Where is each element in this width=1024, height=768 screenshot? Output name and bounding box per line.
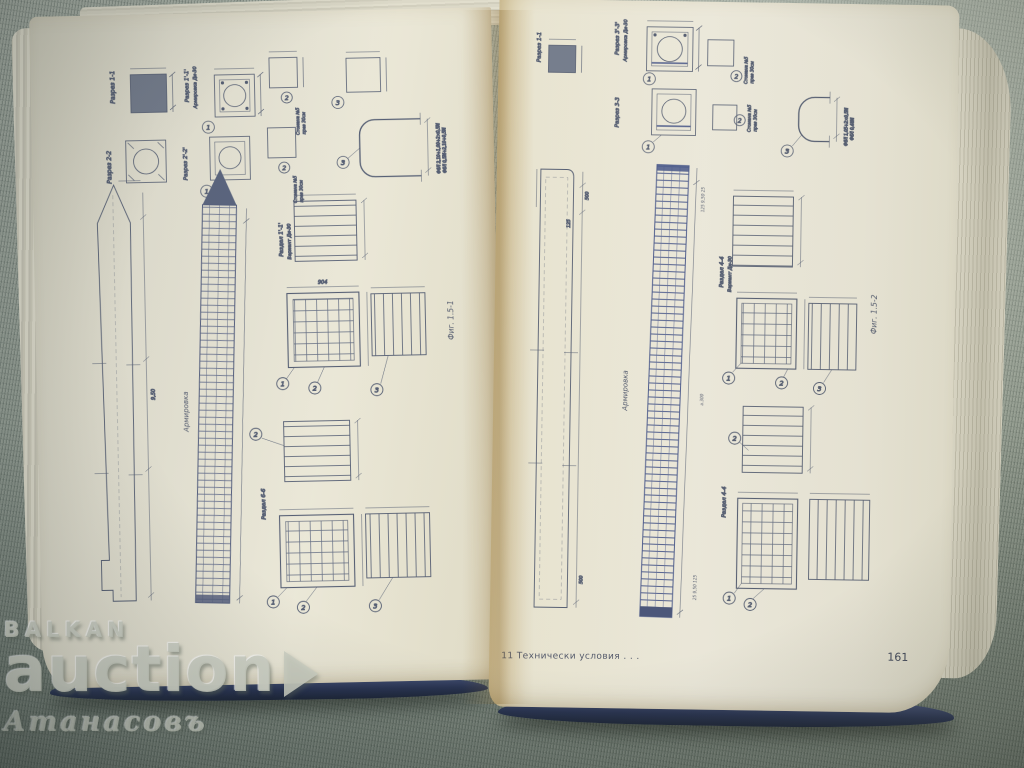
section-label: Армировка Ди-30 <box>623 19 630 62</box>
callout-1: 1 <box>643 73 655 85</box>
steel-note: през 30см <box>753 109 758 131</box>
svg-text:1: 1 <box>727 375 731 383</box>
detail-variant: Вариант Ди-30 <box>286 223 293 259</box>
figure-label: Фиг. 1.5-2 <box>869 294 879 334</box>
page-number: 161 <box>887 651 908 664</box>
callout-1: 1 <box>276 367 294 389</box>
svg-text:3: 3 <box>375 386 379 394</box>
dim-spacing: а.300 <box>699 393 704 405</box>
svg-text:3: 3 <box>817 385 821 393</box>
section-label: Разрез 2'-2' <box>183 147 190 180</box>
callout-3: 3 <box>370 355 389 395</box>
steel-note: Стомана №5 <box>292 175 298 203</box>
ubar-note: Ф6Л 0,48М <box>849 117 854 140</box>
svg-text:1: 1 <box>727 595 731 603</box>
callout-1: 1 <box>642 135 661 153</box>
steel-note: Стомана №5 <box>743 56 748 84</box>
dim-sequence-top: 125 9,50 25 <box>700 187 705 213</box>
left-figure-drawing: Разрез 1-1 Разрез 2-2 Разрез 1'-1' Армир… <box>86 38 479 650</box>
svg-text:1: 1 <box>281 380 285 388</box>
right-cross-sections: Разрез 1-1 Разрез 3'-3' Армировка Ди-30 … <box>535 18 759 155</box>
steel-note: през 30см <box>749 61 754 83</box>
right-ubar-detail: 3 Ф6Л 1,05+2×0,5М Ф6Л 0,48М <box>781 91 855 158</box>
svg-text:2: 2 <box>738 118 742 125</box>
callout-3: 3 <box>337 148 360 168</box>
section-label: Разрез 3'-3' <box>615 22 622 55</box>
section-label: Разрез 2-2 <box>106 151 114 184</box>
dim-sequence-bottom: 25 9,50 125 <box>692 575 697 601</box>
detail-title: Раздел 4-4 <box>721 486 727 518</box>
section-label: Разрез 3-3 <box>615 97 621 128</box>
reinforcement-label: Армировка <box>621 370 630 412</box>
callout-1: 1 <box>723 363 741 384</box>
callout-1: 1 <box>202 121 214 133</box>
steel-note: през 30см <box>301 112 306 134</box>
callout-3: 3 <box>781 135 801 157</box>
callout-3: 3 <box>332 96 344 108</box>
svg-text:1: 1 <box>206 124 210 132</box>
callout-2: 2 <box>281 92 292 103</box>
svg-text:2: 2 <box>285 95 289 102</box>
reinforcement-label: Армировка <box>182 391 191 433</box>
right-page: Разрез 1-1 Разрез 3'-3' Армировка Ди-30 … <box>488 0 959 714</box>
ubar-note: Ф6Л 2,10+1,00+2×0,5М <box>435 123 441 174</box>
svg-text:2: 2 <box>254 431 258 439</box>
figure-label: Фиг. 1.5-1 <box>446 300 456 340</box>
svg-text:2: 2 <box>734 74 738 81</box>
right-mesh-details-upper: Раздел 4-4 Вариант Ди-30 1 2 <box>717 190 858 395</box>
left-page: Разрез 1-1 Разрез 2-2 Разрез 1'-1' Армир… <box>29 7 505 689</box>
callout-1: 1 <box>267 588 287 608</box>
section-label: Разрез 1'-1' <box>184 69 191 102</box>
book-photo: Разрез 1-1 Разрез 2-2 Разрез 1'-1' Армир… <box>0 0 1024 768</box>
svg-text:1: 1 <box>647 75 651 83</box>
svg-text:3: 3 <box>336 99 340 107</box>
mesh-width-dim: 904 <box>318 280 328 286</box>
ubar-note: Ф6Л 0,5М+2,10+0,5М <box>441 127 447 173</box>
right-beam-outline: 500 125 500 <box>526 169 591 608</box>
right-figure-drawing: Разрез 1-1 Разрез 3'-3' Армировка Ди-30 … <box>524 7 902 643</box>
ubar-note: Ф6Л 1,05+2×0,5М <box>843 107 849 146</box>
svg-text:1: 1 <box>646 143 650 151</box>
svg-text:2: 2 <box>282 165 286 172</box>
svg-text:2: 2 <box>779 379 783 387</box>
svg-text:3: 3 <box>785 147 789 155</box>
svg-text:2: 2 <box>733 435 737 443</box>
section-label: Разрез 1-1 <box>109 71 117 104</box>
dim-500-top: 500 <box>584 191 590 200</box>
callout-2: 2 <box>279 162 290 173</box>
callout-3: 3 <box>369 577 394 611</box>
pile-length-dim: 9,50 <box>151 389 157 400</box>
svg-text:1: 1 <box>271 598 275 606</box>
detail-title: Раздел 1'-1' <box>278 223 285 257</box>
callout-2: 2 <box>250 428 284 447</box>
steel-note: Стомана №5 <box>747 104 752 132</box>
dim-500-bottom: 500 <box>578 575 584 584</box>
callout-2: 2 <box>297 587 318 613</box>
section-label: Разрез 1-1 <box>537 32 543 62</box>
svg-text:3: 3 <box>373 602 377 610</box>
callout-1: 1 <box>723 583 741 604</box>
steel-note: през 30см <box>298 180 303 202</box>
left-pile-reinforcement <box>196 169 251 604</box>
left-pile-outline: 9,50 <box>88 180 161 601</box>
left-cross-sections: Разрез 1-1 Разрез 2-2 Разрез 1'-1' Армир… <box>104 49 389 207</box>
section-label: Армировка Ди-30 <box>192 66 199 109</box>
svg-text:3: 3 <box>341 159 345 167</box>
left-mesh-details-lower: 2 Раздел 6-6 1 2 <box>250 417 432 615</box>
callout-2: 2 <box>308 367 325 394</box>
right-mesh-details-lower: 2 Раздел 4-4 1 2 <box>720 404 871 612</box>
callout-2: 2 <box>775 369 787 389</box>
left-mesh-details-upper: Раздел 1'-1' Вариант Ди-30 904 1 2 <box>273 193 427 398</box>
left-ubar-detail: 3 Ф6Л 2,10+1,00+2×0,5М Ф6Л 0,5М+2,10+0,5… <box>336 112 447 183</box>
svg-text:2: 2 <box>313 384 317 392</box>
callout-2: 2 <box>744 588 764 610</box>
right-beam-reinforcement <box>640 165 700 618</box>
detail-title: Раздел 4-4 <box>719 256 725 288</box>
signature-mark: 11 Технически условия . . . <box>501 651 639 662</box>
callout-2: 2 <box>731 71 742 82</box>
callout-2: 2 <box>734 115 745 126</box>
detail-title: Раздел 6-6 <box>261 488 268 520</box>
callout-3: 3 <box>813 369 831 394</box>
svg-text:2: 2 <box>748 601 752 609</box>
svg-text:2: 2 <box>301 604 305 612</box>
dim-125-top: 125 <box>566 219 572 228</box>
